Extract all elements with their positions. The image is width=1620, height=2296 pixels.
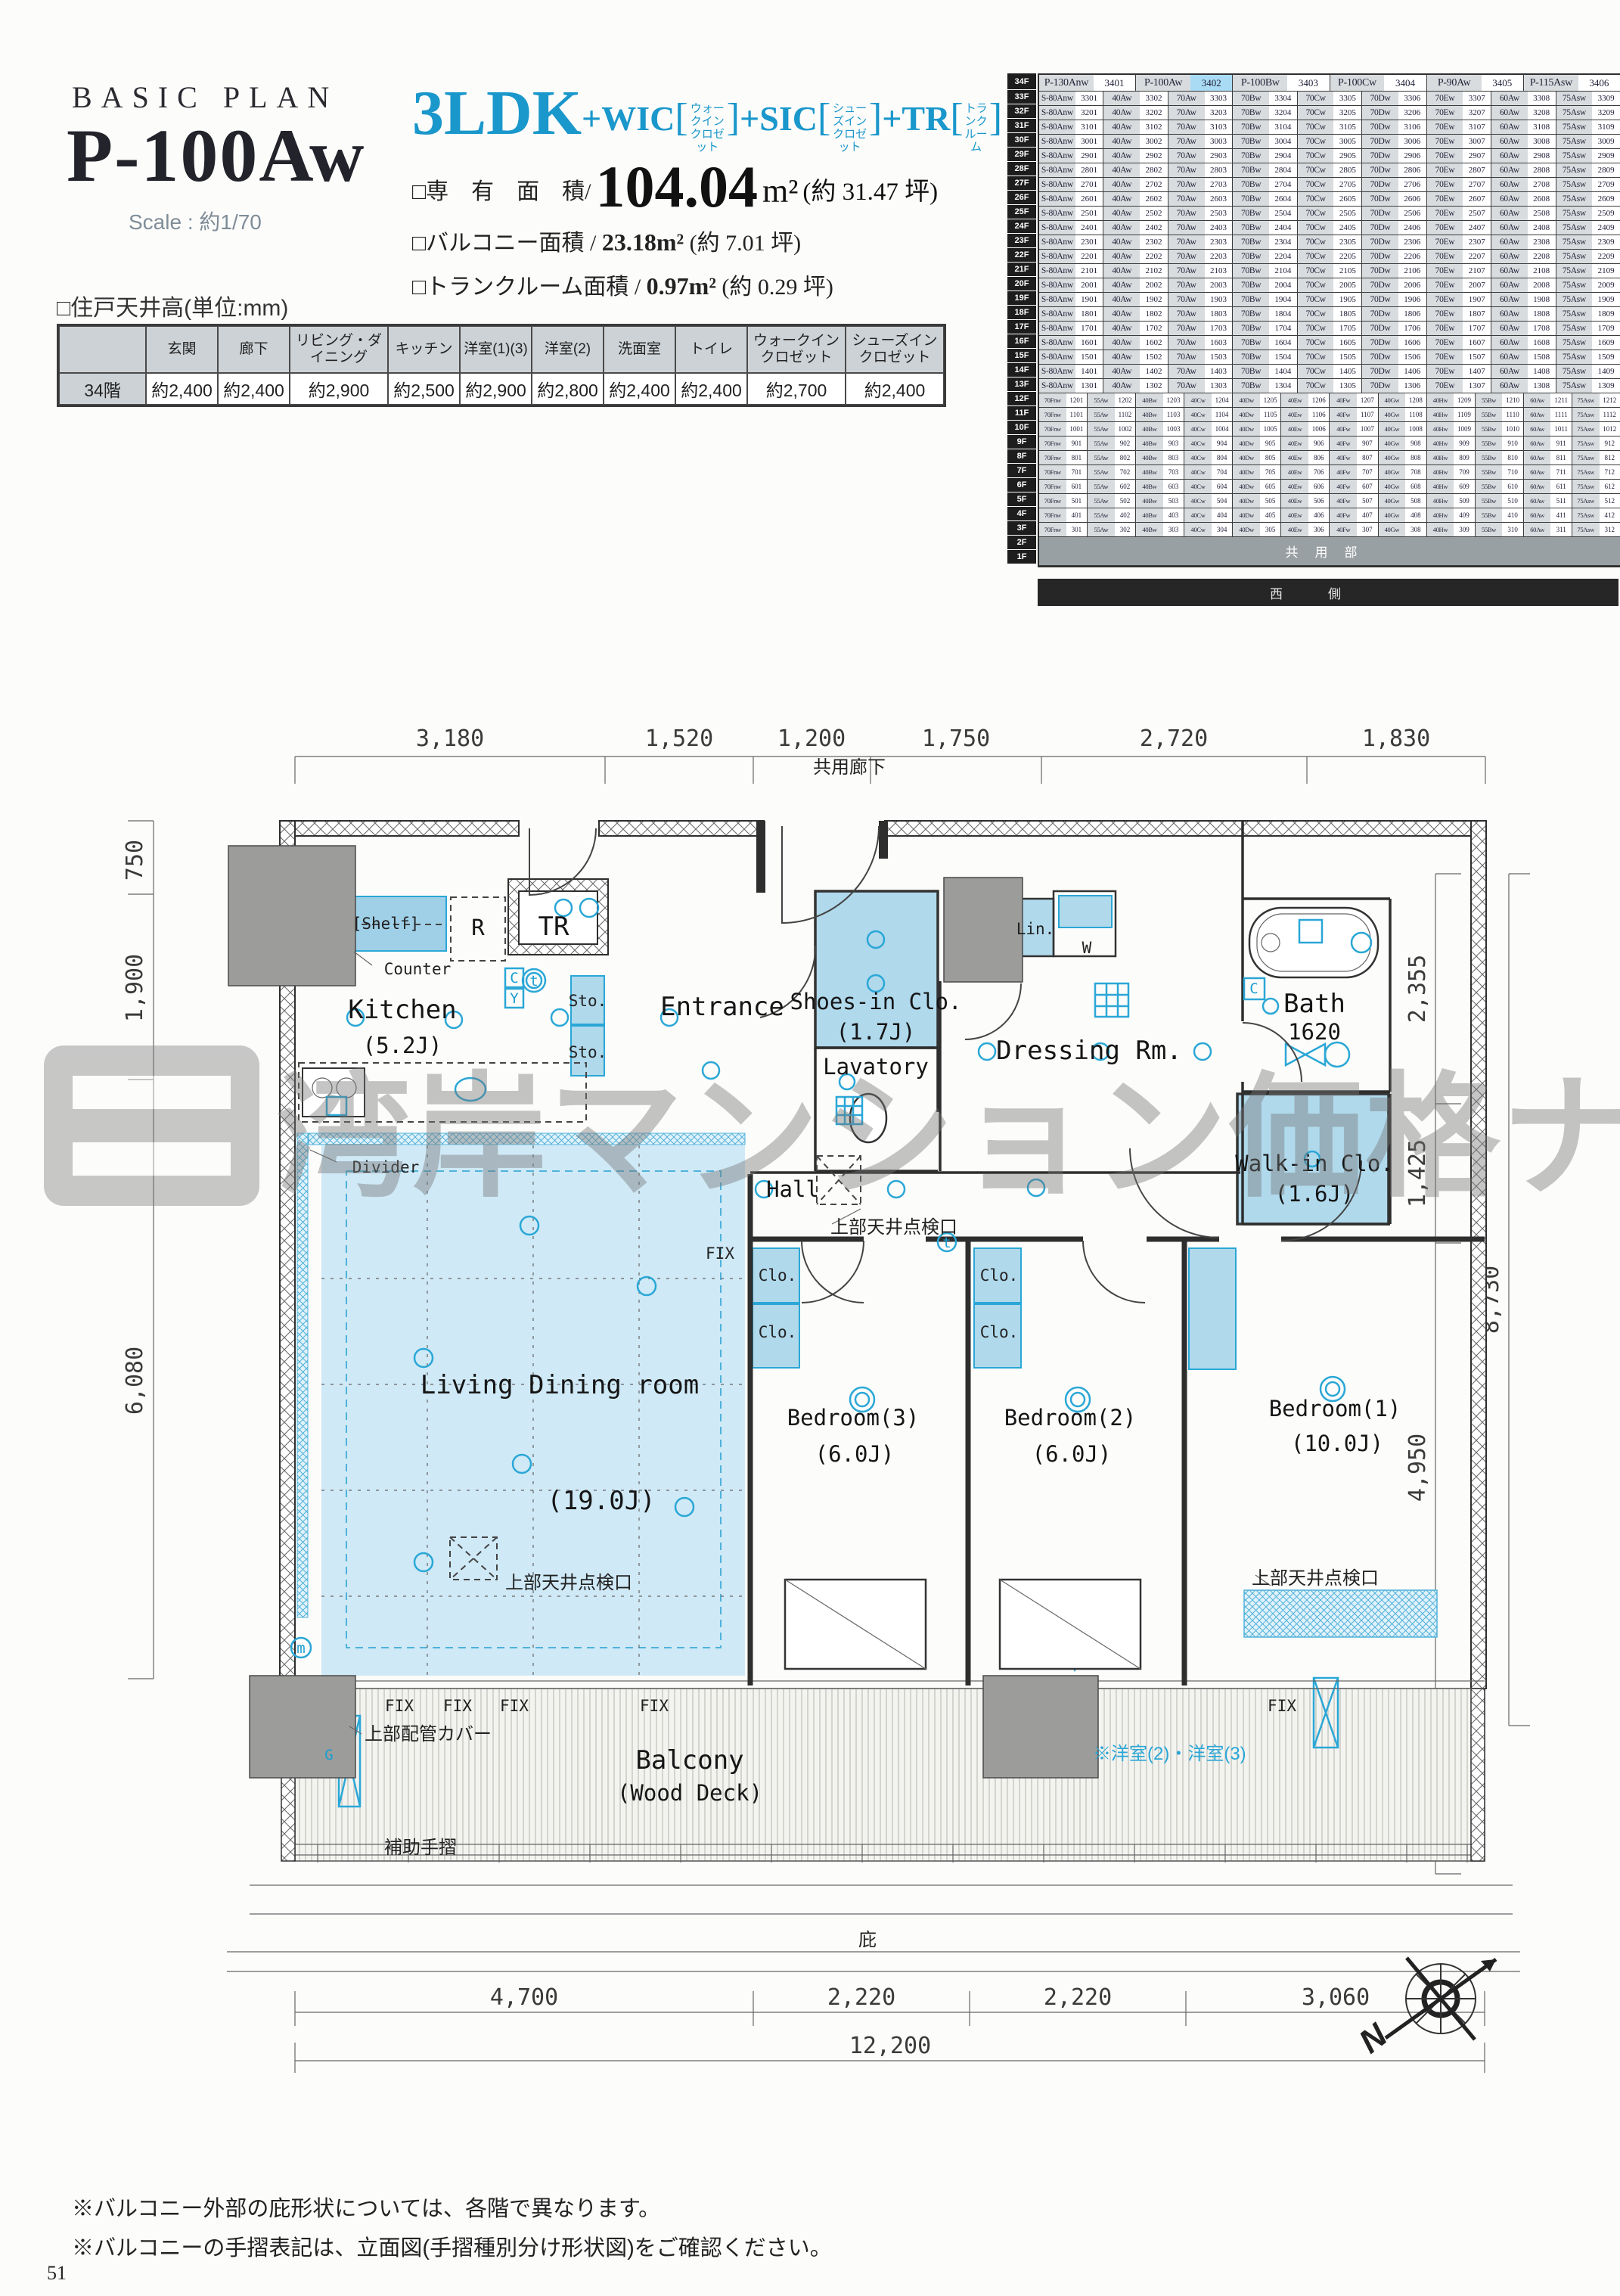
dim-top-5: 2,720 bbox=[1140, 725, 1208, 752]
linen-label: Lin. bbox=[1016, 920, 1055, 938]
entrance-label: Entrance bbox=[660, 992, 784, 1022]
shoes-in-label: Shoes-in Clo. bbox=[790, 989, 962, 1014]
bath-drain bbox=[1325, 1042, 1349, 1067]
dim-total: 12,200 bbox=[849, 2033, 931, 2059]
dim-bottom-4: 3,060 bbox=[1302, 1984, 1370, 2011]
closet-label: Clo. bbox=[980, 1266, 1019, 1285]
fix-label: FIX bbox=[443, 1697, 472, 1715]
symbol-c: C bbox=[1249, 980, 1258, 997]
pillar bbox=[228, 846, 355, 986]
inspection-hatch-label: 上部天井点検口 bbox=[1252, 1568, 1379, 1589]
bath-size: 1620 bbox=[1288, 1019, 1341, 1045]
fix-label: FIX bbox=[640, 1697, 669, 1715]
closet-label: Clo. bbox=[759, 1323, 797, 1341]
dim-bottom-3: 2,220 bbox=[1044, 1984, 1112, 2011]
bed1-bed-symbol bbox=[1244, 1590, 1437, 1637]
storage-label: Sto. bbox=[569, 992, 607, 1010]
balcony-label: Balcony bbox=[635, 1745, 743, 1776]
dim-left-1: 750 bbox=[122, 840, 148, 881]
dim-top-1: 3,180 bbox=[416, 725, 484, 752]
walkin-label: Walk-in Clo. bbox=[1235, 1151, 1394, 1176]
bedroom3-size: (6.0J) bbox=[815, 1441, 895, 1467]
fix-label: FIX bbox=[385, 1697, 414, 1715]
symbol-t: t bbox=[529, 973, 538, 990]
aux-handrail-label: 補助手摺 bbox=[384, 1838, 457, 1858]
symbol-m: m bbox=[296, 1640, 305, 1657]
bedroom2-size: (6.0J) bbox=[1032, 1441, 1112, 1467]
symbol-g: G bbox=[324, 1747, 333, 1763]
inspection-hatch-label: 上部天井点検口 bbox=[505, 1573, 632, 1593]
fix-label: FIX bbox=[500, 1697, 529, 1715]
storage-label: Sto. bbox=[569, 1043, 607, 1061]
counter-label: Counter bbox=[384, 960, 452, 978]
inspection-hatch-label: 上部天井点検口 bbox=[830, 1217, 957, 1238]
lavatory-label: Lavatory bbox=[823, 1054, 929, 1080]
dim-right-1: 2,355 bbox=[1404, 955, 1431, 1023]
pipe-cover-label: 上部配管カバー bbox=[365, 1724, 492, 1745]
balcony bbox=[281, 1657, 1485, 1863]
symbol-c: C bbox=[510, 970, 518, 986]
symbol-y: Y bbox=[510, 990, 519, 1007]
eaves-lines bbox=[227, 1885, 1520, 1971]
living-dining-size: (19.0J) bbox=[547, 1486, 655, 1516]
shoes-in-size: (1.7J) bbox=[836, 1019, 916, 1045]
fix-label: FIX bbox=[1268, 1697, 1296, 1715]
corridor-label: 共用廊下 bbox=[813, 757, 886, 778]
compass-north-label: N bbox=[1352, 2016, 1395, 2061]
bed1-closet bbox=[1189, 1248, 1236, 1369]
bedroom3-label: Bedroom(3) bbox=[787, 1405, 920, 1431]
walkin-size: (1.6J) bbox=[1275, 1181, 1355, 1207]
bedroom1-size: (10.0J) bbox=[1291, 1431, 1383, 1456]
dim-right-2: 1,425 bbox=[1404, 1139, 1431, 1207]
dim-right-4: 4,950 bbox=[1404, 1434, 1431, 1502]
balcony-room-note: ※洋室(2)・洋室(3) bbox=[1093, 1744, 1246, 1764]
kitchen-sink bbox=[455, 1078, 486, 1101]
fix-label: FIX bbox=[706, 1244, 734, 1263]
dim-left-2: 1,900 bbox=[122, 954, 148, 1022]
bedroom1-label: Bedroom(1) bbox=[1269, 1396, 1401, 1421]
eaves-label: 庇 bbox=[858, 1930, 877, 1950]
bedroom2-label: Bedroom(2) bbox=[1004, 1405, 1137, 1431]
pillar bbox=[250, 1676, 355, 1778]
kitchen-size: (5.2J) bbox=[363, 1033, 442, 1058]
divider-label: Divider bbox=[352, 1158, 420, 1176]
bath-label: Bath bbox=[1283, 989, 1345, 1019]
living-dining-label: Living Dining room bbox=[421, 1370, 699, 1400]
dim-bottom-1: 4,700 bbox=[490, 1984, 558, 2011]
dim-top-3: 1,200 bbox=[777, 725, 846, 752]
hall-label: Hall bbox=[766, 1176, 819, 1202]
trunk-room-label: TR bbox=[538, 912, 569, 942]
dim-bottom-2: 2,220 bbox=[827, 1984, 895, 2011]
washer-space bbox=[1059, 896, 1112, 927]
refrigerator-label: R bbox=[471, 915, 485, 940]
wood-deck-label: (Wood Deck) bbox=[617, 1780, 762, 1806]
floor-plan-drawing: 3,180 1,520 1,200 1,750 2,720 1,830 4,70… bbox=[0, 0, 1620, 2296]
brochure-page: 3,180 1,520 1,200 1,750 2,720 1,830 4,70… bbox=[0, 0, 1620, 2296]
dim-top-2: 1,520 bbox=[645, 725, 713, 752]
closet-label: Clo. bbox=[980, 1323, 1019, 1341]
toilet bbox=[850, 1094, 886, 1142]
dim-top-6: 1,830 bbox=[1362, 725, 1430, 752]
washer-label: W bbox=[1082, 939, 1092, 957]
shelf-label: [Shelf] bbox=[352, 915, 420, 933]
dressing-label: Dressing Rm. bbox=[996, 1036, 1182, 1066]
closet-label: Clo. bbox=[759, 1266, 797, 1285]
dim-top-4: 1,750 bbox=[922, 725, 990, 752]
dim-left-3: 6,080 bbox=[122, 1347, 148, 1415]
shaft bbox=[944, 878, 1023, 982]
compass-rose-icon: N bbox=[1352, 1958, 1496, 2061]
pillar bbox=[983, 1676, 1098, 1778]
kitchen-label: Kitchen bbox=[348, 995, 456, 1025]
